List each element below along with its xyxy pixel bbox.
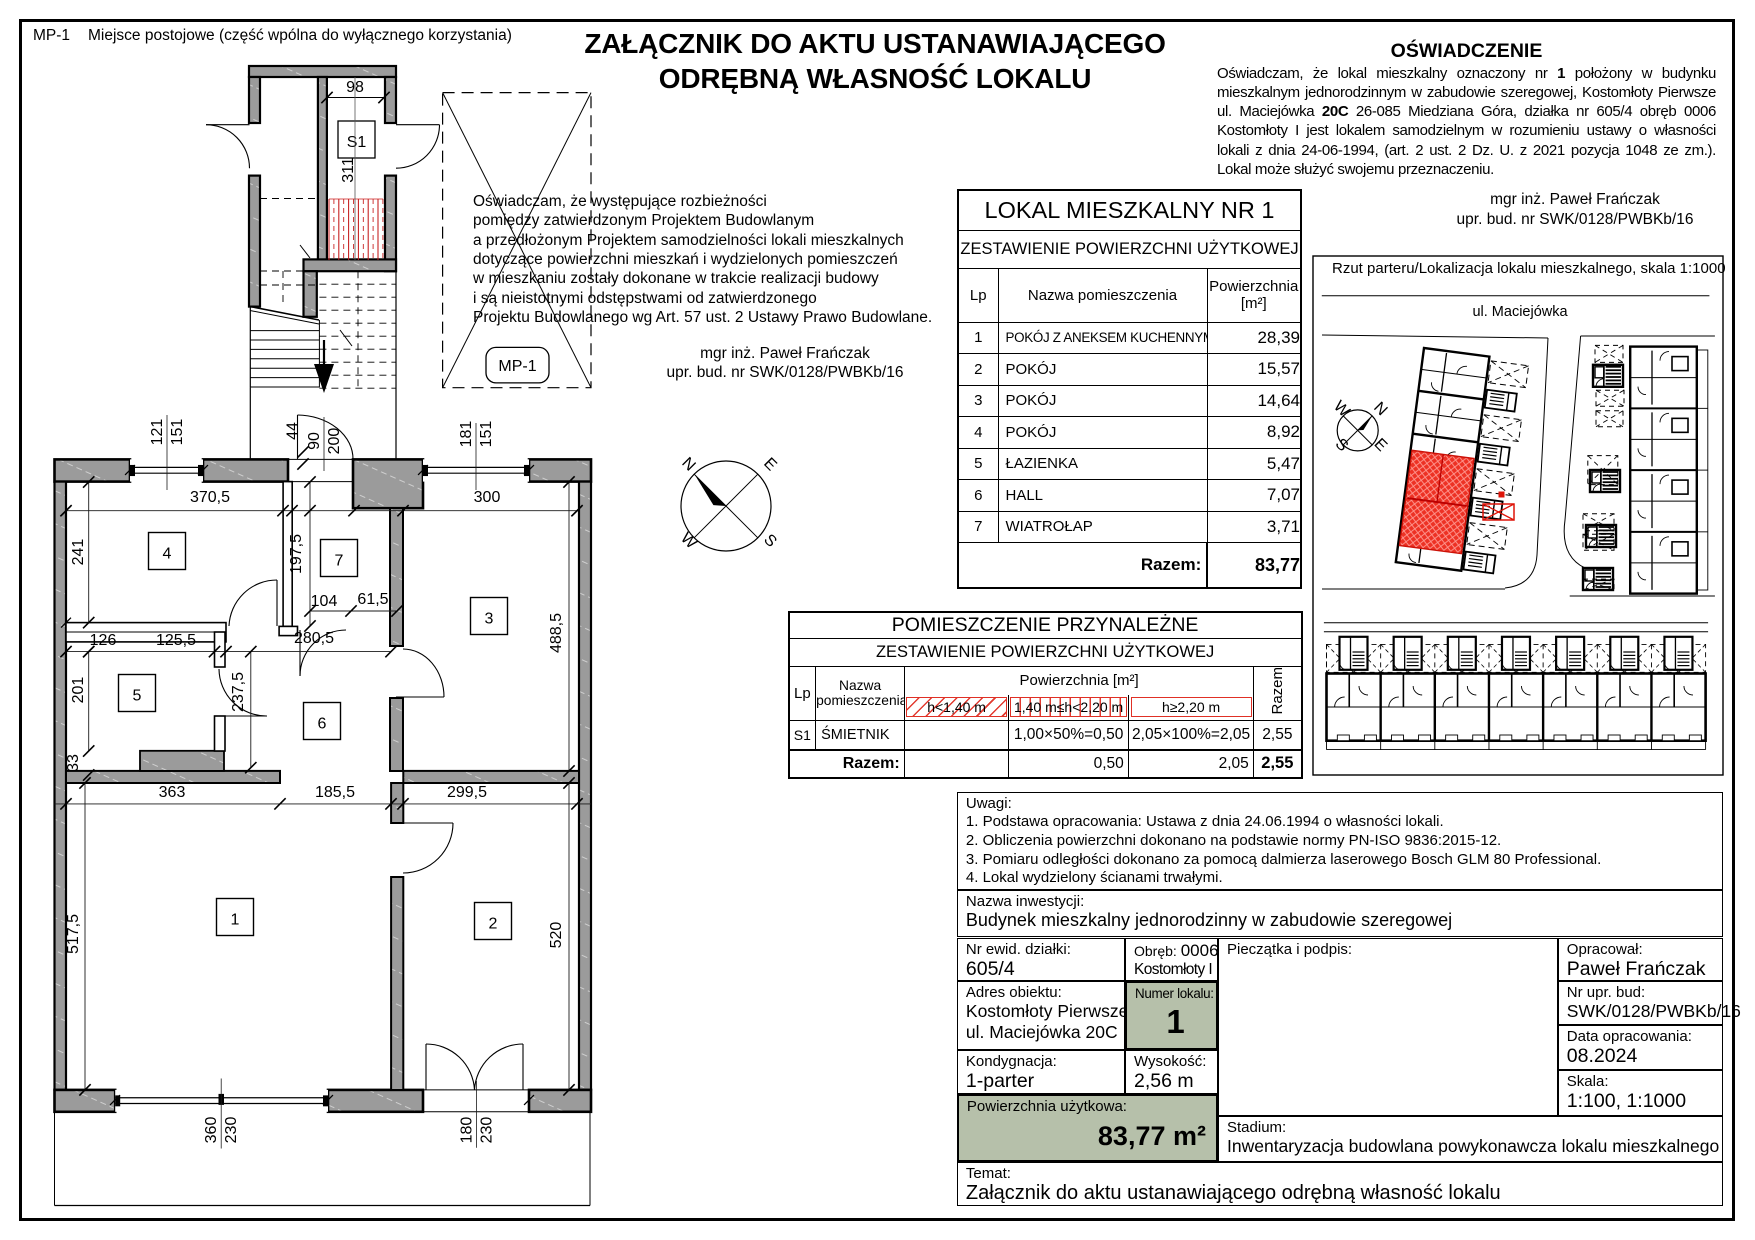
svg-text:E: E [1371, 435, 1391, 455]
svg-text:7: 7 [335, 553, 344, 570]
svg-text:S: S [760, 531, 780, 551]
svg-text:S1: S1 [347, 134, 367, 151]
svg-text:517,5: 517,5 [65, 914, 82, 954]
svg-text:360: 360 [203, 1117, 220, 1144]
svg-text:241: 241 [70, 539, 87, 566]
svg-text:230: 230 [223, 1117, 240, 1144]
svg-text:S: S [1332, 435, 1352, 455]
svg-text:6: 6 [318, 716, 327, 733]
svg-text:300: 300 [474, 489, 501, 506]
svg-text:520: 520 [548, 922, 565, 949]
svg-text:121: 121 [149, 419, 166, 446]
svg-text:151: 151 [169, 419, 186, 446]
svg-text:E: E [760, 455, 780, 475]
svg-text:N: N [678, 455, 698, 475]
svg-text:237,5: 237,5 [230, 672, 247, 712]
svg-text:299,5: 299,5 [447, 784, 487, 801]
svg-text:311: 311 [340, 157, 357, 183]
svg-text:180: 180 [459, 1117, 476, 1144]
svg-text:230: 230 [479, 1117, 496, 1144]
svg-text:5: 5 [133, 688, 142, 705]
svg-text:61,5: 61,5 [357, 591, 388, 608]
svg-text:126: 126 [90, 632, 117, 649]
svg-text:90: 90 [306, 432, 323, 450]
svg-text:200: 200 [326, 428, 343, 455]
svg-text:125,5: 125,5 [156, 632, 196, 649]
svg-text:44: 44 [285, 422, 302, 440]
svg-text:488,5: 488,5 [548, 613, 565, 653]
svg-text:280,5: 280,5 [294, 630, 334, 647]
svg-text:363: 363 [159, 784, 186, 801]
svg-text:185,5: 185,5 [315, 784, 355, 801]
svg-text:4: 4 [163, 546, 172, 563]
svg-text:MP-1: MP-1 [498, 358, 536, 375]
svg-text:370,5: 370,5 [190, 489, 230, 506]
svg-text:151: 151 [478, 421, 495, 448]
svg-text:2: 2 [489, 916, 498, 933]
svg-text:W: W [677, 530, 700, 553]
svg-text:197,5: 197,5 [288, 534, 305, 574]
svg-text:1: 1 [231, 912, 240, 929]
svg-text:W: W [1330, 398, 1353, 421]
svg-text:33: 33 [65, 754, 82, 772]
svg-text:104: 104 [311, 593, 338, 610]
svg-text:181: 181 [458, 421, 475, 448]
svg-text:3: 3 [485, 611, 494, 628]
svg-text:201: 201 [70, 677, 87, 704]
